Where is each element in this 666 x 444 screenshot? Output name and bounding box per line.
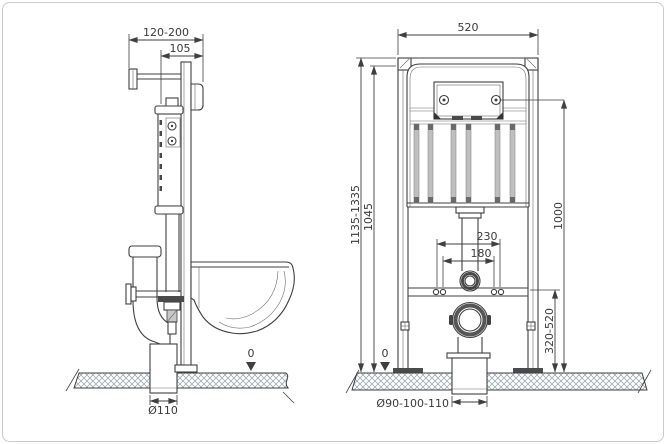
dim-label-floor-zero-front: 0 [382, 347, 389, 360]
side-view: 120-200 105 0 Ø110 [66, 26, 294, 417]
left-foot-plate [393, 368, 423, 373]
floor-drain-box-front [452, 358, 487, 394]
dim-label-depth: 105 [170, 42, 191, 55]
floor-section-front [346, 370, 651, 393]
technical-drawing-sheet: 120-200 105 0 Ø110 [0, 0, 666, 444]
dim-label-outlet-diameter: Ø90-100-110 [376, 397, 449, 410]
dim-label-floor-zero-side: 0 [248, 347, 255, 360]
floor-drain-pipe-side [150, 344, 177, 393]
dim-label-frame-height: 1135-1335 [349, 185, 362, 245]
drain-socket-front [447, 303, 491, 359]
mounting-rod [126, 284, 184, 334]
dim-drain-diameter: Ø110 [148, 395, 178, 417]
dim-outlet-diameter: Ø90-100-110 [376, 396, 487, 410]
dim-label-flush-plate-center: 1000 [552, 202, 565, 230]
dim-label-drain-diameter: Ø110 [148, 404, 178, 417]
dim-fixing-spacing: 230 180 [437, 230, 500, 287]
front-view: 520 1135-1335 1045 0 1000 320-520 [346, 21, 651, 410]
installation-frame-drawing: 120-200 105 0 Ø110 [0, 0, 666, 444]
dim-label-frame-height-secondary: 1045 [362, 203, 375, 231]
dim-label-outlet-height: 320-520 [543, 308, 556, 354]
floor-zero-marker-front: 0 [380, 347, 390, 371]
flush-plate-access-box [434, 82, 503, 120]
cistern-side [155, 98, 183, 292]
dim-frame-width: 520 [398, 21, 538, 55]
dim-frame-heights: 1135-1335 1045 [349, 58, 396, 372]
dim-label-fixing-outer: 230 [477, 230, 498, 243]
floor-section-side [66, 369, 294, 403]
dim-label-wall-distance: 120-200 [143, 26, 189, 39]
dim-label-fixing-inner: 180 [471, 247, 492, 260]
right-foot-plate [513, 368, 543, 373]
cistern-front [407, 64, 529, 207]
dim-outlet-height: 320-520 [530, 290, 560, 372]
floor-zero-marker-side: 0 [246, 347, 256, 371]
toilet-bowl [191, 262, 294, 334]
wall-anchor-arm [129, 69, 181, 89]
dim-label-frame-width: 520 [458, 21, 479, 34]
